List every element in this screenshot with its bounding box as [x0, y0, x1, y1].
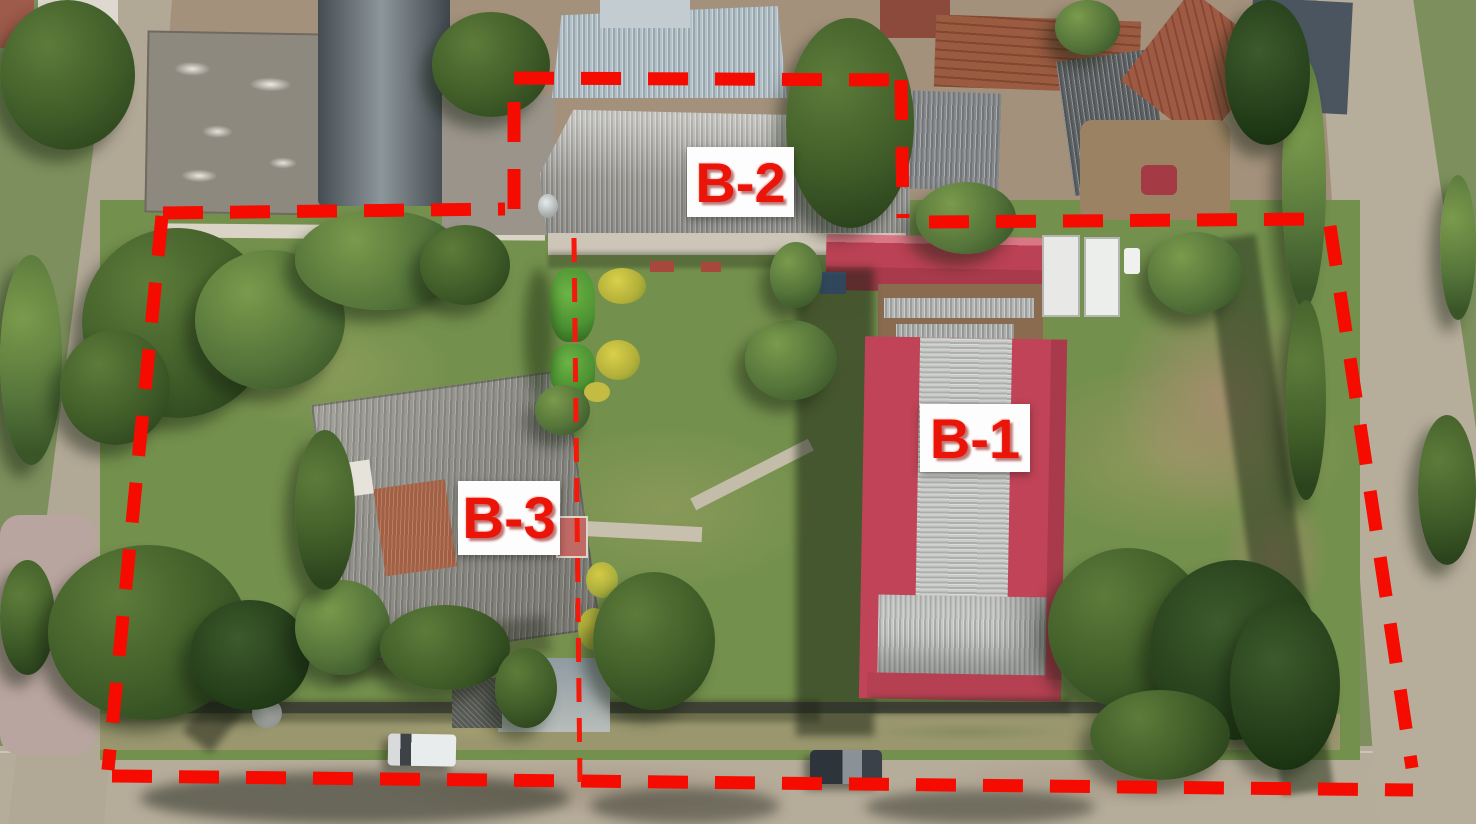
tree	[1440, 175, 1476, 320]
tree	[60, 330, 170, 445]
tree	[786, 18, 914, 228]
b1-cross-roof	[877, 595, 1048, 676]
yellow-bush	[596, 340, 640, 380]
courtyard-roof-strip	[884, 298, 1034, 318]
label-b2-text: B-2	[695, 150, 785, 215]
tree	[1055, 0, 1120, 55]
tree	[0, 560, 55, 675]
truck-cab	[1124, 248, 1140, 274]
tree	[295, 430, 355, 590]
label-b1: B-1	[920, 404, 1030, 472]
tree-shadow	[865, 790, 1095, 824]
tree	[535, 385, 590, 435]
tree	[0, 255, 62, 465]
tree	[745, 320, 837, 400]
tree	[190, 600, 310, 710]
label-b2: B-2	[687, 147, 794, 217]
tree	[1286, 300, 1326, 500]
tree	[420, 225, 510, 305]
light-roof-wing	[600, 0, 690, 28]
tree	[1225, 0, 1310, 145]
building-b1-roof	[859, 336, 1067, 701]
tree	[1090, 690, 1230, 780]
red-car	[1141, 165, 1177, 195]
hedge-shadow	[524, 268, 554, 400]
b1-bottom-shadow	[870, 698, 1070, 714]
water-tank	[538, 194, 558, 218]
box-truck	[1084, 237, 1120, 317]
tree-shadow	[590, 788, 780, 824]
dark-suv	[810, 750, 882, 784]
tree	[495, 648, 557, 728]
yellow-bush	[584, 382, 610, 402]
garden-bench	[650, 261, 674, 272]
tree	[593, 572, 715, 710]
tree	[295, 580, 390, 675]
box-truck	[1042, 235, 1080, 317]
tree	[916, 182, 1016, 254]
b3-porch	[556, 516, 588, 558]
tree	[1418, 415, 1476, 565]
tree	[0, 0, 135, 150]
label-b3-text: B-3	[462, 485, 555, 552]
hedge	[550, 268, 595, 342]
yellow-bush	[598, 268, 646, 304]
neighbor-gray-roof	[903, 90, 1001, 191]
label-b3: B-3	[458, 481, 560, 555]
white-pickup	[388, 733, 457, 766]
tree	[380, 605, 510, 690]
tree	[1230, 600, 1340, 770]
garden-bench	[701, 262, 721, 272]
aerial-photo: B-2 B-1 B-3	[0, 0, 1476, 824]
tree	[770, 242, 822, 308]
label-b1-text: B-1	[930, 406, 1020, 471]
b3-red-tile-patch	[373, 479, 457, 576]
tree-shadow	[140, 772, 570, 824]
barrel-roof-warehouse	[318, 0, 450, 206]
flat-roof-building	[144, 30, 325, 215]
tree	[1148, 232, 1243, 314]
tree	[432, 12, 550, 117]
